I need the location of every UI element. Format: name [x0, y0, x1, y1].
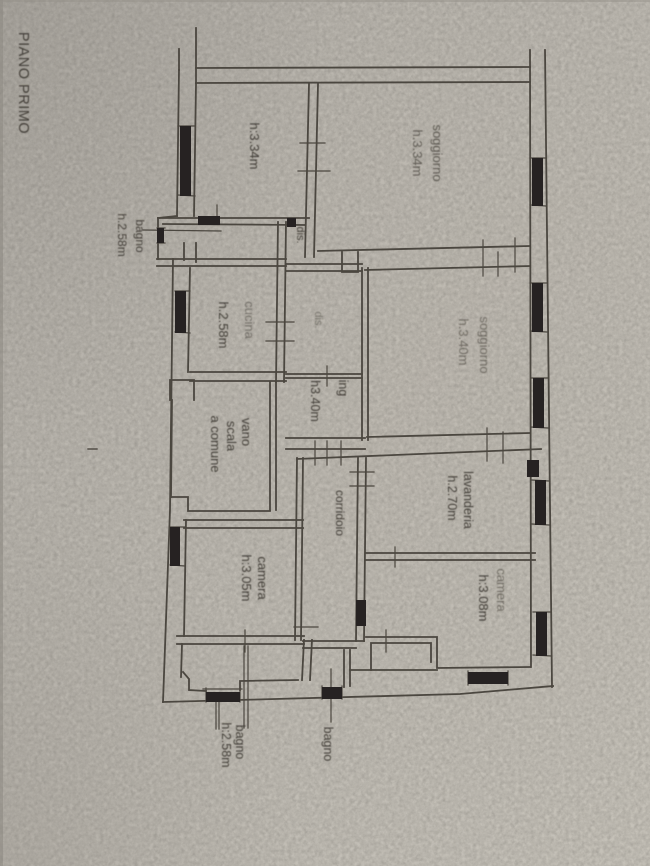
- svg-text:h3.40m: h3.40m: [308, 380, 322, 422]
- svg-text:soggiorno: soggiorno: [430, 124, 445, 181]
- svg-text:h:2.58m: h:2.58m: [219, 722, 233, 767]
- svg-text:bagno: bagno: [133, 219, 147, 253]
- svg-text:dis.: dis.: [294, 226, 306, 243]
- svg-text:cucina: cucina: [242, 301, 257, 339]
- svg-text:h:3.08m: h:3.08m: [476, 575, 491, 622]
- svg-text:h.2.58m: h.2.58m: [115, 213, 129, 256]
- svg-text:h.3.34m: h.3.34m: [410, 130, 425, 177]
- svg-text:lavanderia: lavanderia: [461, 471, 475, 529]
- svg-text:camera: camera: [255, 556, 270, 600]
- svg-text:corridoio: corridoio: [333, 490, 347, 536]
- svg-text:soggiorno: soggiorno: [477, 316, 492, 373]
- svg-text:bagno: bagno: [321, 727, 335, 762]
- svg-text:h.2.58m: h.2.58m: [216, 302, 231, 349]
- svg-text:bagno: bagno: [233, 725, 247, 760]
- svg-text:h.3.40m: h.3.40m: [456, 319, 471, 366]
- svg-text:scala: scala: [224, 421, 239, 452]
- svg-text:ing: ing: [336, 380, 350, 397]
- svg-text:vano: vano: [239, 418, 254, 446]
- svg-text:dis.: dis.: [312, 311, 324, 328]
- svg-text:PIANO PRIMO: PIANO PRIMO: [15, 32, 31, 134]
- svg-text:a comune: a comune: [208, 415, 223, 472]
- svg-text:camera: camera: [494, 568, 509, 612]
- svg-text:h.2.70m: h.2.70m: [445, 475, 459, 520]
- svg-text:h:3.05m: h:3.05m: [239, 555, 254, 602]
- svg-text:h:3.34m: h:3.34m: [247, 123, 262, 170]
